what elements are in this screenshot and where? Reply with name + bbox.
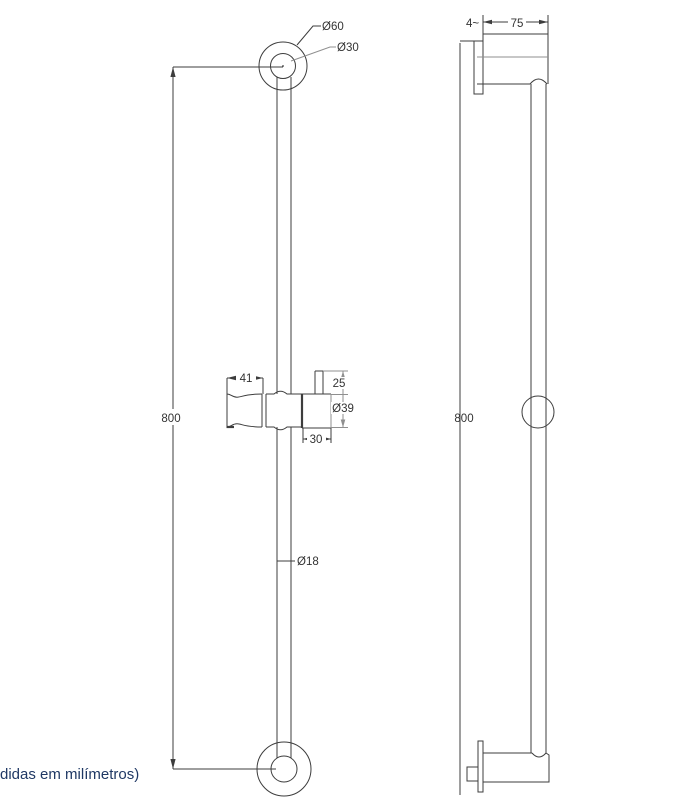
side-bar [531,84,546,753]
label-wall-projection: 75 [511,18,524,30]
label-knob-diameter: Ø39 [332,403,354,415]
label-side-height: 800 [454,413,473,425]
label-top-inner-diameter: Ø30 [337,42,359,54]
label-tab-height: 25 [333,378,346,390]
holder-top-edge [227,394,262,397]
side-top-mount [460,34,548,94]
top-mount-center-mark [282,65,284,67]
leader-d60 [297,26,321,45]
drawing-canvas: Ø60 Ø30 800 41 25 Ø39 30 Ø18 800 [0,0,685,800]
units-caption: didas em milímetros) [0,766,139,783]
side-slider-knob [522,396,554,428]
label-front-height: 800 [161,413,180,425]
front-view [156,26,355,796]
label-flange-thickness: 4~ [466,18,479,30]
front-top-mount [259,26,336,90]
side-bottom-flange [478,741,483,792]
side-top-bar-cap [530,79,547,84]
slider-body-top [266,391,302,394]
slider-body-bottom [266,427,302,430]
side-top-flange [474,41,483,94]
label-knob-width: 30 [310,434,323,446]
label-holder-width: 41 [240,373,253,385]
side-bottom-mount [467,741,549,792]
front-bar [277,77,295,758]
side-top-body [483,34,548,84]
side-bottom-bar-cap [532,753,546,757]
label-top-outer-diameter: Ø60 [322,21,344,33]
label-bar-diameter: Ø18 [297,556,319,568]
slider-tab [315,371,323,394]
side-view [460,15,554,795]
leader-d30 [291,47,336,61]
technical-drawing-page: Ø60 Ø30 800 41 25 Ø39 30 Ø18 800 [0,0,685,800]
side-bottom-bracket [467,767,478,781]
